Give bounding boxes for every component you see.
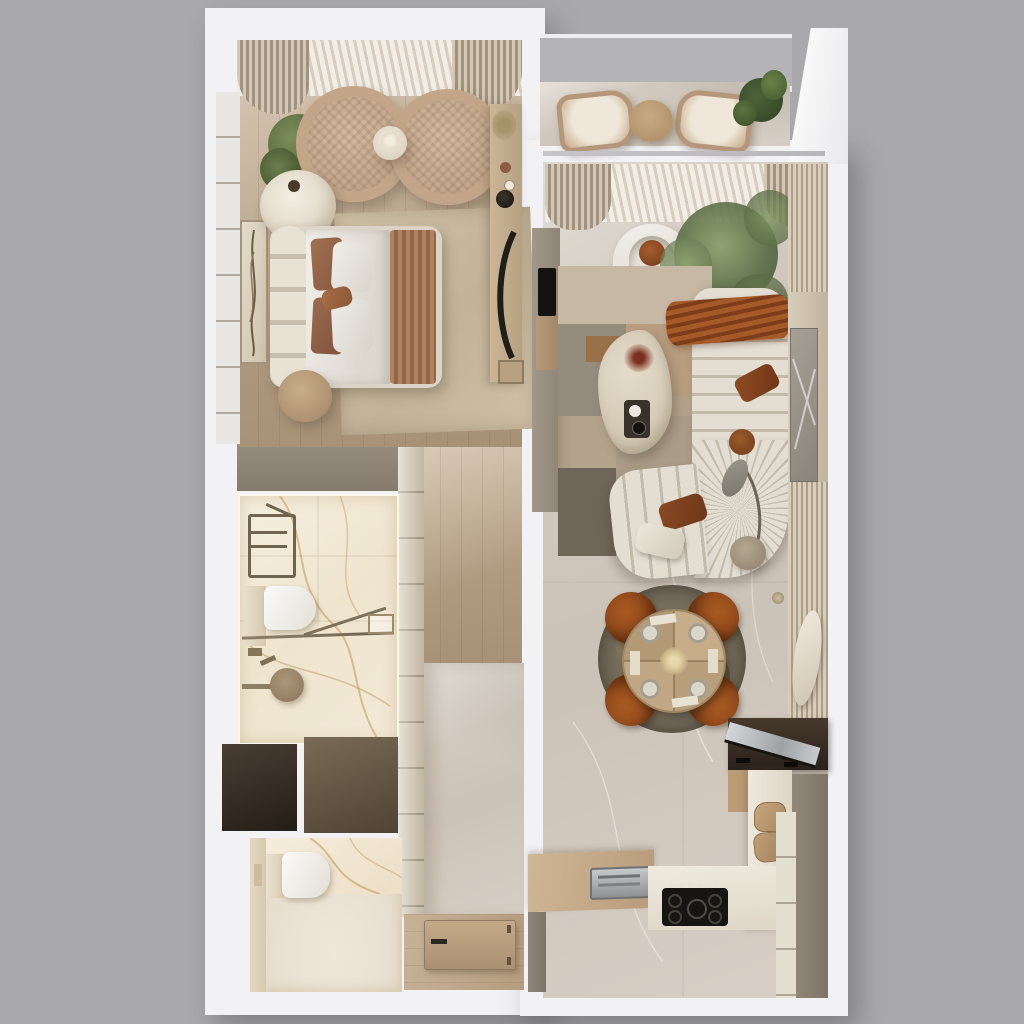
towel-ladder (248, 514, 296, 578)
bedroom-closet-left-wall (216, 92, 240, 444)
kitchen-side-cabinets (776, 812, 796, 998)
wc-flush-plate (254, 864, 262, 886)
balcony-window-glazing (543, 151, 825, 156)
dining-table (622, 609, 726, 713)
media-panel (532, 228, 560, 512)
corridor-kitchen-wall (528, 912, 546, 992)
desk-bowl (496, 190, 514, 208)
dining-wall-light (772, 592, 784, 604)
balcony-round-table (629, 100, 673, 142)
entry-door (424, 920, 516, 970)
double-bed (270, 226, 442, 388)
napkin-w (630, 651, 640, 675)
gas-cooktop (662, 888, 728, 926)
flower-centerpiece (660, 647, 688, 675)
toilet-flush-button (248, 648, 262, 656)
round-side-table (373, 126, 407, 160)
desk-chair-arc (492, 228, 520, 364)
kitchen-back-wall (792, 774, 828, 998)
wall-unit (788, 164, 828, 744)
art-branches (242, 222, 266, 362)
balcony-lounge-chair-left (555, 88, 637, 154)
lamp-base (730, 536, 766, 570)
bed-ribbed-throw (390, 230, 436, 384)
table-flowers (381, 132, 399, 150)
napkin-e (708, 649, 718, 673)
door-hinge-top (507, 925, 511, 933)
bedroom-wall-art (240, 220, 268, 364)
shower-head (270, 668, 304, 702)
table-tray (624, 400, 650, 438)
desk-drawer (498, 360, 524, 384)
napkin-se (672, 695, 699, 708)
balcony-plant (733, 70, 791, 136)
service-void (237, 447, 398, 491)
bed-headboard (270, 226, 308, 388)
floor-plan-canvas (0, 0, 1024, 1024)
kitchen-counter-stone (648, 866, 792, 930)
tv-lowboard (536, 316, 560, 370)
coffee-table (598, 330, 672, 454)
bedside-table (278, 370, 332, 422)
door-hinge-bottom (507, 957, 511, 965)
rattan-armchair-right (390, 89, 506, 205)
desk-vase (500, 162, 511, 173)
pillow-white-top (331, 241, 374, 293)
desk-dried-plant (492, 110, 516, 140)
plate-sw (640, 679, 660, 699)
kitchen-counter-wood (528, 850, 654, 912)
duct-shaft-brown (304, 737, 398, 833)
plate-nw (640, 623, 660, 643)
sofa-throw-blanket (665, 294, 792, 347)
vanity-desk (490, 104, 522, 382)
bathroom-floor (240, 496, 397, 743)
wc-side-wall (250, 838, 266, 992)
door-handle (431, 939, 447, 944)
living-curtain-bunch-left (545, 164, 611, 230)
tv (538, 268, 556, 316)
plate-ne (688, 623, 708, 643)
wc-wall-hung-toilet (282, 852, 330, 898)
shower-caddy (368, 614, 394, 634)
duct-shaft-dark (222, 744, 297, 831)
kitchen-sink (590, 866, 652, 900)
wall-hung-toilet (264, 586, 316, 630)
dried-flowers (624, 344, 654, 372)
hallway-floor (424, 663, 524, 918)
balcony-right-wall (788, 28, 848, 164)
wall-art-panel (790, 328, 818, 482)
wc-floor (250, 838, 402, 992)
kitchen-bar-console (728, 718, 828, 770)
